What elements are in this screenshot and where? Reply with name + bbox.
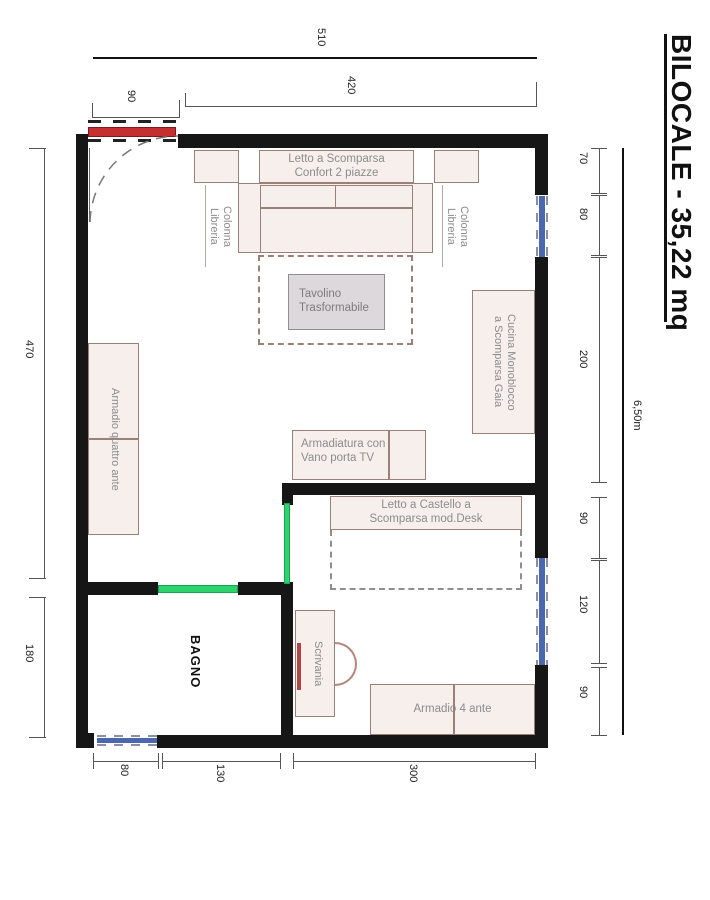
bunk-bed-cabinet: Letto a Castello a Scomparsa mod.Desk — [330, 496, 522, 530]
dim-650m: 6,50m — [631, 400, 643, 431]
sofa-cushion-left — [260, 185, 336, 208]
dim-200: 200 — [577, 350, 589, 368]
dim-120: 120 — [577, 595, 589, 613]
dim-line-b80 — [93, 761, 158, 762]
dim-b80: 80 — [118, 764, 130, 776]
dim-tick — [29, 148, 46, 149]
dim-tick — [591, 195, 607, 196]
dim-tick — [93, 753, 94, 769]
dim-line-90b — [599, 667, 600, 735]
tv-cabinet-label: Armadiatura con Vano porta TV — [293, 431, 425, 466]
dim-tick — [536, 82, 537, 107]
wall-bedroom-divider-end — [282, 483, 293, 505]
coffee-table: Tavolino Trasformabile — [288, 274, 385, 330]
bookcase-left-label: Colonna Libreria — [206, 184, 233, 268]
dim-tick — [591, 560, 607, 561]
door-swing-arc — [80, 130, 190, 230]
window-right-upper — [539, 196, 545, 257]
dim-tick — [179, 100, 180, 118]
dim-tick — [591, 558, 607, 559]
plan-title: BILOCALE - 35,22 mq — [653, 33, 697, 333]
kitchen-label: Cucina Monoblocco a Scomparsa Gaia — [489, 300, 517, 424]
dim-tick — [29, 578, 46, 579]
dim-420: 420 — [345, 76, 357, 94]
wardrobe-4-ante-split — [453, 685, 455, 734]
dim-tick — [591, 255, 607, 256]
dim-tick — [591, 148, 607, 149]
bunk-bed-label: Letto a Castello a Scomparsa mod.Desk — [369, 499, 482, 527]
wall-bedroom-divider — [282, 483, 548, 495]
dim-tick — [591, 497, 607, 498]
window-right-upper-dash2 — [546, 196, 548, 257]
wall-right-upper — [535, 134, 548, 195]
bagno-door-green — [158, 585, 238, 593]
dim-tick — [591, 257, 607, 258]
green-partition-vertical — [284, 503, 290, 584]
wall-right-middle — [535, 257, 548, 558]
window-right-lower — [539, 558, 545, 665]
dim-510: 510 — [315, 28, 327, 46]
sofa-seat — [260, 208, 413, 253]
window-right-upper-dash — [536, 196, 538, 257]
window-right-lower-dash2 — [546, 558, 548, 665]
entry-opening-dash-top — [88, 120, 176, 123]
desk-accent-line — [297, 643, 301, 690]
window-right-lower-dash — [536, 558, 538, 665]
wardrobe-four-door-label: Armadio quattro ante — [105, 350, 121, 528]
dim-tick — [591, 735, 607, 736]
dim-line-420 — [185, 106, 537, 107]
dim-line-90a — [599, 497, 600, 558]
fold-away-bed-label: Letto a Scomparsa Confort 2 piazze — [288, 153, 385, 181]
dim-tick — [92, 103, 93, 118]
coffee-table-label: Tavolino Trasformabile — [289, 288, 369, 316]
dim-line-650m — [622, 148, 624, 735]
desk-chair — [335, 642, 357, 686]
fold-away-bed-cabinet: Letto a Scomparsa Confort 2 piazze — [259, 150, 414, 183]
dim-line-200 — [599, 257, 600, 482]
wall-bottom — [157, 735, 548, 748]
dim-line-90-entry — [92, 117, 180, 118]
wall-top — [178, 134, 548, 148]
wall-bagno-right — [281, 595, 293, 735]
dim-b130: 130 — [214, 764, 226, 782]
dim-470: 470 — [23, 340, 35, 358]
wall-bagno-top-left — [88, 582, 158, 595]
tv-cabinet: Armadiatura con Vano porta TV — [292, 430, 426, 480]
dim-tick — [162, 753, 163, 769]
dim-line-510 — [93, 57, 537, 59]
wall-bottom-left-corner — [76, 733, 94, 748]
dim-80: 80 — [577, 208, 589, 220]
dim-line-120 — [599, 560, 600, 663]
dim-90b: 90 — [577, 686, 589, 698]
dim-line-70 — [599, 148, 600, 193]
dim-line-180 — [44, 597, 45, 737]
bookcase-column-left — [194, 150, 239, 183]
window-bagno-dash — [97, 735, 157, 737]
sofa-cushion-right — [335, 185, 413, 208]
dim-line-b130 — [162, 761, 280, 762]
dim-tick — [185, 93, 186, 107]
dim-90-entry: 90 — [125, 90, 137, 102]
window-bagno — [97, 738, 157, 743]
bookcase-column-right — [434, 150, 479, 183]
dim-tick — [29, 737, 46, 738]
floor-plan: BILOCALE - 35,22 mq Letto a Scomparsa Co… — [0, 0, 710, 900]
dim-b300: 300 — [407, 764, 419, 782]
tv-cabinet-split — [388, 431, 390, 479]
desk-label: Scrivania — [308, 630, 324, 698]
dim-180: 180 — [23, 644, 35, 662]
bookcase-right-label: Colonna Libreria — [443, 184, 470, 268]
dim-tick — [535, 753, 536, 769]
dim-70: 70 — [577, 152, 589, 164]
wardrobe-4-ante: Armadio 4 ante — [370, 684, 535, 735]
dim-tick — [280, 753, 281, 769]
dim-tick — [591, 193, 607, 194]
bunk-bed-open-dashed — [330, 530, 522, 590]
dim-line-470 — [44, 148, 45, 578]
dim-tick — [158, 753, 159, 769]
bagno-room-label: BAGNO — [185, 631, 203, 693]
dim-tick — [29, 597, 46, 598]
dim-90a: 90 — [577, 512, 589, 524]
dim-tick — [293, 753, 294, 769]
dim-tick — [591, 667, 607, 668]
dim-tick — [591, 482, 607, 483]
window-bagno-dash2 — [97, 744, 157, 746]
dim-tick — [591, 663, 607, 664]
dim-line-b300 — [293, 761, 535, 762]
dim-line-80 — [599, 195, 600, 255]
